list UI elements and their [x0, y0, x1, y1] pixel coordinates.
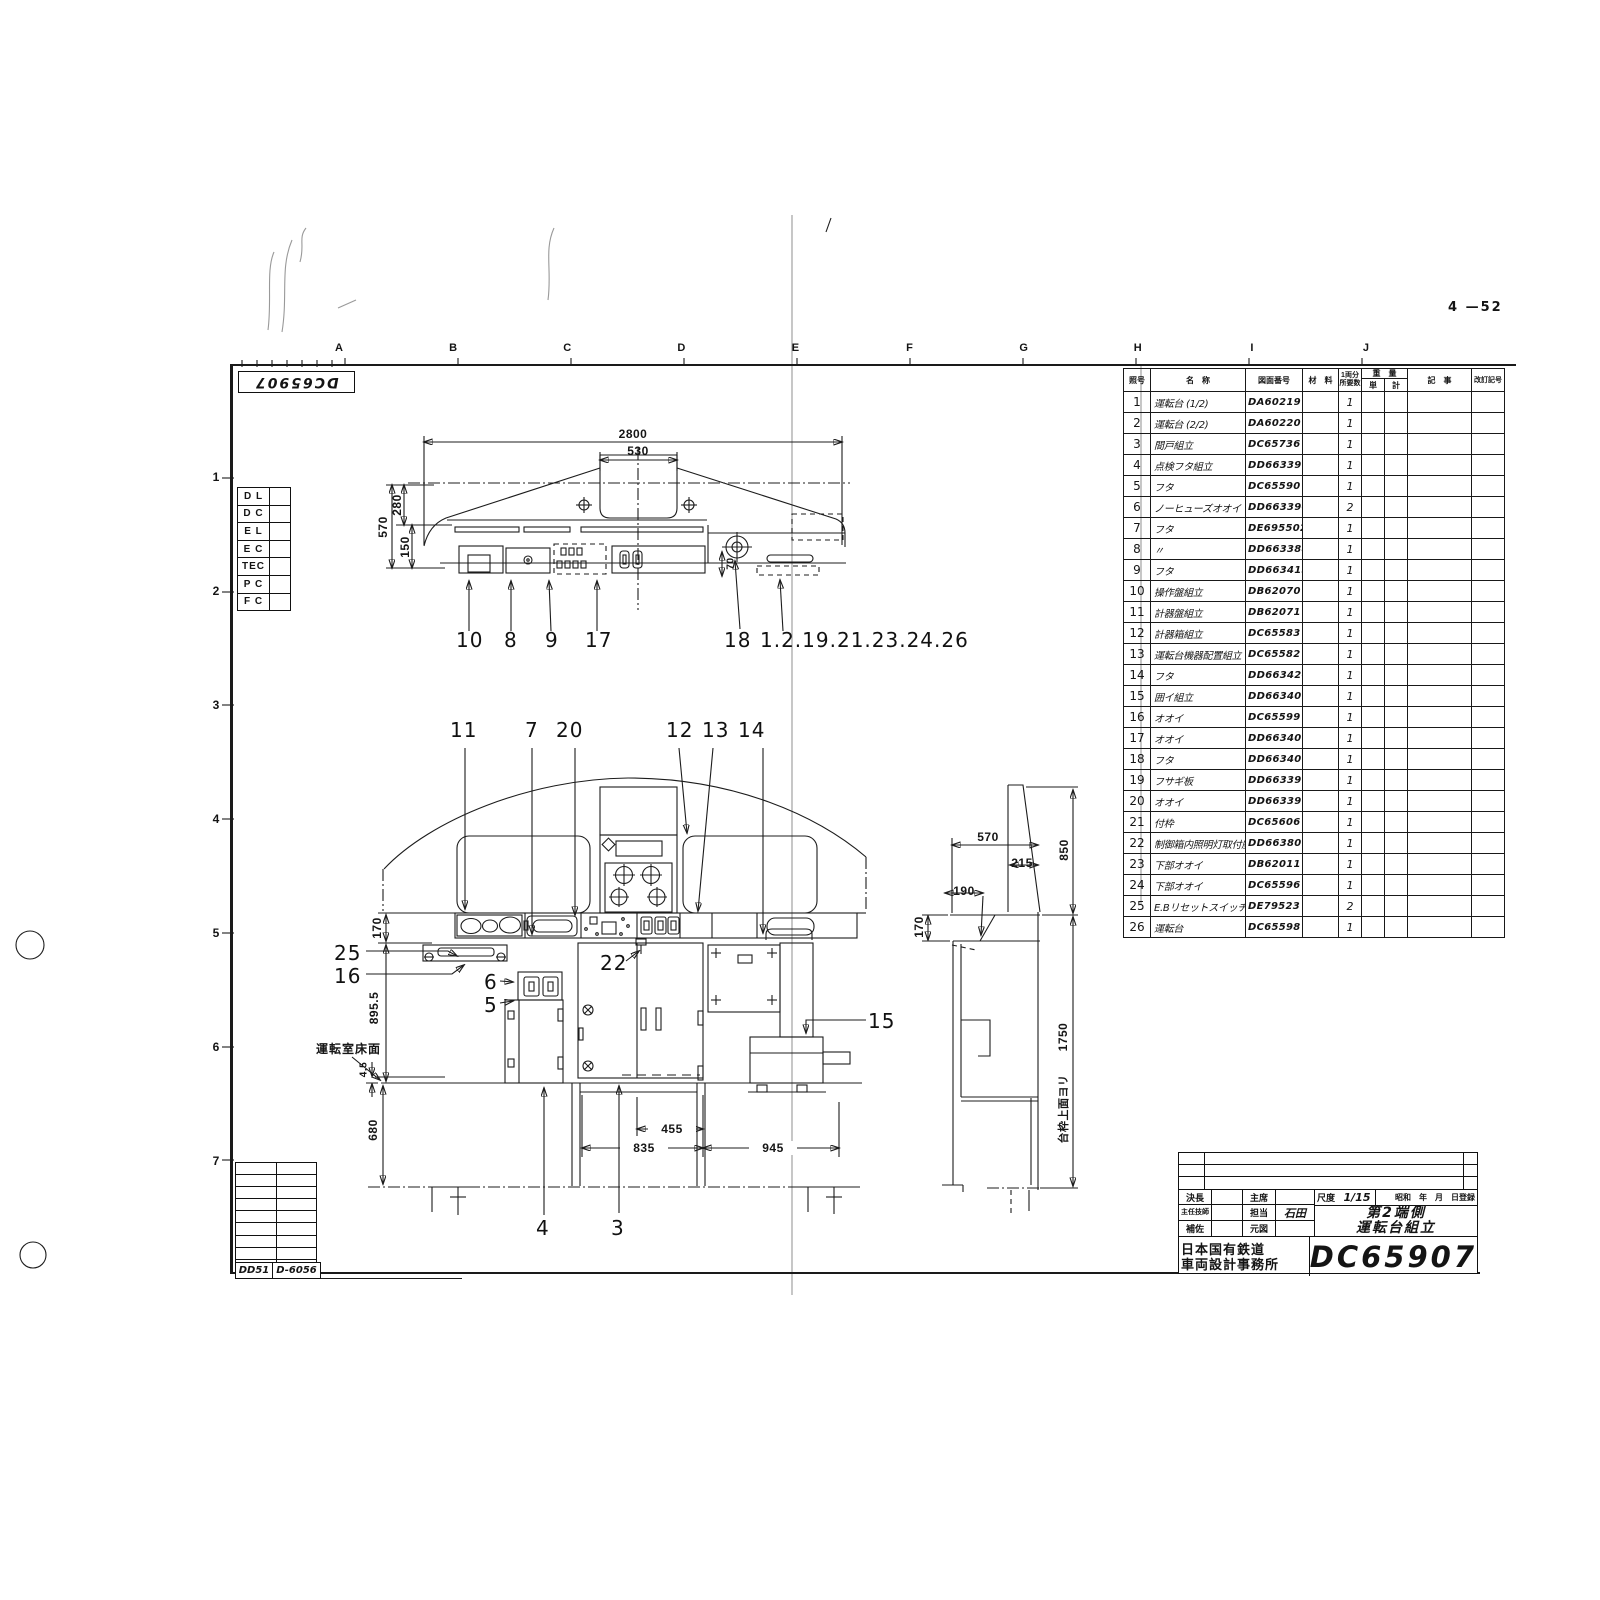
part-name: E.Bリセットスイッチ付板: [1151, 896, 1246, 916]
parts-table-header: 照号 名 称 図面番号 材 料 1両分 所要数 重 量 単 計 記 事 改訂記号: [1124, 369, 1504, 392]
part-revision: [1472, 623, 1504, 643]
callout-11: 11: [450, 718, 477, 742]
part-weight-unit: [1362, 518, 1385, 538]
part-remarks: [1408, 875, 1472, 895]
callout-6: 6: [484, 970, 498, 994]
drawing-title-line2: 運転台組立: [1356, 1221, 1436, 1236]
part-material: [1303, 581, 1339, 601]
part-weight-total: [1385, 665, 1408, 685]
part-row: 23 下部オオイ DB62011 1: [1124, 854, 1504, 875]
part-remarks: [1408, 686, 1472, 706]
part-remarks: [1408, 833, 1472, 853]
drawing-sheet: DC65907 4 —52 ABCDEFGHIJ 1234567 D L D C…: [0, 0, 1600, 1600]
part-row: 1 運転台 (1/2) DA60219 1: [1124, 392, 1504, 413]
grid-letter: I: [1246, 342, 1258, 354]
part-revision: [1472, 812, 1504, 832]
part-material: [1303, 707, 1339, 727]
approval-kecho-value: [1212, 1190, 1243, 1205]
part-row: 21 付枠 DC65606 1: [1124, 812, 1504, 833]
part-material: [1303, 476, 1339, 496]
grid-letter: H: [1132, 342, 1144, 354]
part-remarks: [1408, 812, 1472, 832]
part-dwg-no: DD663399: [1246, 770, 1303, 790]
part-material: [1303, 602, 1339, 622]
part-remarks: [1408, 455, 1472, 475]
part-material: [1303, 644, 1339, 664]
part-revision: [1472, 455, 1504, 475]
part-material: [1303, 728, 1339, 748]
scale-value: 1/15: [1339, 1191, 1375, 1204]
part-dwg-no: DC65606: [1246, 812, 1303, 832]
part-revision: [1472, 686, 1504, 706]
dim-945: 945: [749, 1141, 797, 1155]
header-name: 名 称: [1151, 369, 1246, 391]
approval-grid: 決長 主席 主任技師 担当 石田 補佐 元図: [1179, 1190, 1315, 1236]
part-dwg-no: DB62011: [1246, 854, 1303, 874]
part-no: 16: [1124, 707, 1151, 727]
part-weight-total: [1385, 413, 1408, 433]
part-remarks: [1408, 518, 1472, 538]
part-weight-unit: [1362, 665, 1385, 685]
part-name: フタ: [1151, 476, 1246, 496]
approval-hosa-label: 補佐: [1179, 1221, 1212, 1236]
part-material: [1303, 560, 1339, 580]
part-weight-unit: [1362, 602, 1385, 622]
approval-shunin-label: 主任技師: [1179, 1205, 1212, 1220]
part-qty: 2: [1339, 497, 1362, 517]
dim-150: 150: [398, 525, 412, 569]
part-weight-total: [1385, 791, 1408, 811]
part-material: [1303, 413, 1339, 433]
underframe-ref-label: 台枠上面ヨリ: [1055, 1069, 1071, 1149]
part-dwg-no: DB62071: [1246, 602, 1303, 622]
part-dwg-no: DC65590: [1246, 476, 1303, 496]
part-revision: [1472, 581, 1504, 601]
part-dwg-no: DD663407: [1246, 749, 1303, 769]
left-reference-table: D L D C E L E C TEC: [237, 487, 291, 611]
reference-blank-cell: [270, 488, 290, 505]
part-weight-total: [1385, 581, 1408, 601]
part-qty: 1: [1339, 476, 1362, 496]
part-dwg-no: DD663415: [1246, 560, 1303, 580]
part-name: フサギ板: [1151, 770, 1246, 790]
part-row: 19 フサギ板 DD663399 1: [1124, 770, 1504, 791]
part-qty: 1: [1339, 707, 1362, 727]
dim-170-front: 170: [370, 906, 384, 950]
callout-10: 10: [456, 628, 483, 652]
reference-blank-cell: [270, 541, 290, 558]
part-dwg-no: DE79523: [1246, 896, 1303, 916]
part-remarks: [1408, 854, 1472, 874]
part-qty: 1: [1339, 623, 1362, 643]
reference-label: P C: [238, 576, 270, 593]
part-row: 20 オオイ DD663391 1: [1124, 791, 1504, 812]
part-revision: [1472, 665, 1504, 685]
part-name: 運転台 (2/2): [1151, 413, 1246, 433]
part-revision: [1472, 560, 1504, 580]
part-weight-unit: [1362, 560, 1385, 580]
part-no: 7: [1124, 518, 1151, 538]
grid-letter: A: [333, 342, 345, 354]
reference-row: D C: [238, 506, 290, 524]
part-material: [1303, 455, 1339, 475]
part-no: 2: [1124, 413, 1151, 433]
dim-680: 680: [366, 1108, 380, 1152]
dim-2800: 2800: [603, 427, 663, 441]
part-weight-unit: [1362, 413, 1385, 433]
part-row: 26 運転台 DC65598 1: [1124, 917, 1504, 937]
part-revision: [1472, 791, 1504, 811]
part-name: 囲イ組立: [1151, 686, 1246, 706]
header-material: 材 料: [1303, 369, 1339, 391]
part-weight-total: [1385, 392, 1408, 412]
dim-215: 215: [1002, 856, 1042, 870]
part-no: 6: [1124, 497, 1151, 517]
part-revision: [1472, 917, 1504, 937]
revision-row: [1179, 1153, 1477, 1165]
part-dwg-no: DA60220: [1246, 413, 1303, 433]
part-row: 17 オオイ DD663406 1: [1124, 728, 1504, 749]
part-material: [1303, 392, 1339, 412]
part-name: フタ: [1151, 749, 1246, 769]
dim-280: 280: [390, 483, 404, 527]
part-weight-unit: [1362, 875, 1385, 895]
callout-14: 14: [738, 718, 765, 742]
grid-letter: G: [1018, 342, 1030, 354]
callout-18: 18: [724, 628, 751, 652]
part-row: 15 囲イ組立 DD663409 1: [1124, 686, 1504, 707]
grid-letter: B: [447, 342, 459, 354]
part-name: 下部オオイ: [1151, 854, 1246, 874]
part-weight-unit: [1362, 539, 1385, 559]
header-weight-unit: 単: [1362, 379, 1385, 391]
part-no: 12: [1124, 623, 1151, 643]
grid-number: 6: [208, 1040, 224, 1054]
grid-number: 2: [208, 584, 224, 598]
part-weight-total: [1385, 707, 1408, 727]
corner-stamp: DC65907: [238, 371, 355, 393]
part-dwg-no: DE695502: [1246, 518, 1303, 538]
part-name: 運転台 (1/2): [1151, 392, 1246, 412]
part-qty: 1: [1339, 791, 1362, 811]
part-dwg-no: DD663388: [1246, 539, 1303, 559]
dim-530: 530: [608, 444, 668, 458]
part-weight-total: [1385, 518, 1408, 538]
callout-12: 12: [666, 718, 693, 742]
dim-835: 835: [620, 1141, 668, 1155]
part-row: 8 〃 DD663388 1: [1124, 539, 1504, 560]
model-row: DD51 D-6056: [235, 1262, 321, 1279]
part-no: 21: [1124, 812, 1151, 832]
model-code: D-6056: [273, 1263, 320, 1278]
part-remarks: [1408, 896, 1472, 916]
grid-number: 1: [208, 470, 224, 484]
part-no: 17: [1124, 728, 1151, 748]
floor-surface-label: 運転室床面: [316, 1040, 400, 1057]
drawing-title: 第2端側 運転台組立: [1315, 1206, 1477, 1236]
part-revision: [1472, 707, 1504, 727]
reference-row: TEC: [238, 558, 290, 576]
part-revision: [1472, 497, 1504, 517]
part-weight-total: [1385, 539, 1408, 559]
part-material: [1303, 833, 1339, 853]
part-qty: 1: [1339, 602, 1362, 622]
dim-455: 455: [648, 1122, 696, 1136]
part-no: 19: [1124, 770, 1151, 790]
part-name: 制御箱内照明灯取付座: [1151, 833, 1246, 853]
part-remarks: [1408, 581, 1472, 601]
reference-label: E C: [238, 541, 270, 558]
dim-70: 70: [726, 542, 737, 586]
part-no: 14: [1124, 665, 1151, 685]
callout-16: 16: [334, 964, 361, 988]
top-view: [386, 436, 850, 631]
part-material: [1303, 770, 1339, 790]
part-row: 22 制御箱内照明灯取付座 DD663809 1: [1124, 833, 1504, 854]
part-no: 26: [1124, 917, 1151, 937]
part-qty: 1: [1339, 875, 1362, 895]
callout-3: 3: [611, 1216, 625, 1240]
part-no: 5: [1124, 476, 1151, 496]
grid-numbers: 1234567: [208, 470, 224, 1168]
revision-blank-table: [235, 1162, 317, 1272]
part-dwg-no: DD663409: [1246, 686, 1303, 706]
part-qty: 1: [1339, 833, 1362, 853]
callout-8: 8: [504, 628, 518, 652]
part-name: 下部オオイ: [1151, 875, 1246, 895]
dim-850: 850: [1057, 828, 1071, 872]
part-revision: [1472, 749, 1504, 769]
part-weight-total: [1385, 749, 1408, 769]
header-weight: 重 量 単 計: [1362, 369, 1408, 391]
part-remarks: [1408, 665, 1472, 685]
part-remarks: [1408, 476, 1472, 496]
approval-kecho-label: 決長: [1179, 1190, 1212, 1205]
reference-label: D L: [238, 488, 270, 505]
grid-letter: D: [675, 342, 687, 354]
part-remarks: [1408, 413, 1472, 433]
part-weight-unit: [1362, 434, 1385, 454]
organization: 日本国有鉄道 車両設計事務所: [1179, 1237, 1310, 1276]
part-material: [1303, 623, 1339, 643]
part-weight-total: [1385, 854, 1408, 874]
part-revision: [1472, 854, 1504, 874]
part-remarks: [1408, 434, 1472, 454]
part-qty: 1: [1339, 644, 1362, 664]
sheet-number: 4 —52: [1448, 300, 1503, 315]
frame-top: [230, 364, 1516, 366]
part-row: 12 計器箱組立 DC65583 1: [1124, 623, 1504, 644]
corner-stamp-number: DC65907: [254, 374, 339, 390]
grid-letter: J: [1360, 342, 1372, 354]
part-name: 間戸組立: [1151, 434, 1246, 454]
scale-label: 尺度: [1315, 1191, 1339, 1204]
part-no: 18: [1124, 749, 1151, 769]
part-row: 25 E.Bリセットスイッチ付板 DE79523 2: [1124, 896, 1504, 917]
part-revision: [1472, 602, 1504, 622]
header-no: 照号: [1124, 369, 1151, 391]
part-weight-unit: [1362, 791, 1385, 811]
part-revision: [1472, 770, 1504, 790]
part-row: 3 間戸組立 DC65736 1: [1124, 434, 1504, 455]
part-weight-total: [1385, 476, 1408, 496]
part-weight-unit: [1362, 644, 1385, 664]
part-remarks: [1408, 539, 1472, 559]
part-qty: 1: [1339, 728, 1362, 748]
model-series: DD51: [236, 1263, 273, 1278]
part-dwg-no: DC65583: [1246, 623, 1303, 643]
part-revision: [1472, 833, 1504, 853]
part-row: 13 運転台機器配置組立 DC65582 1: [1124, 644, 1504, 665]
part-name: オオイ: [1151, 707, 1246, 727]
part-qty: 1: [1339, 665, 1362, 685]
part-revision: [1472, 392, 1504, 412]
part-weight-total: [1385, 560, 1408, 580]
callout-15: 15: [868, 1009, 895, 1033]
approval-genzu-value: [1276, 1221, 1314, 1236]
part-weight-unit: [1362, 749, 1385, 769]
part-dwg-no: DC65598: [1246, 917, 1303, 937]
reference-label: TEC: [238, 558, 270, 575]
part-material: [1303, 686, 1339, 706]
part-remarks: [1408, 749, 1472, 769]
part-no: 4: [1124, 455, 1151, 475]
part-remarks: [1408, 644, 1472, 664]
parts-table: 照号 名 称 図面番号 材 料 1両分 所要数 重 量 単 計 記 事 改訂記号: [1123, 368, 1505, 938]
part-weight-unit: [1362, 728, 1385, 748]
grid-number: 4: [208, 812, 224, 826]
approval-genzu-label: 元図: [1243, 1221, 1276, 1236]
part-no: 23: [1124, 854, 1151, 874]
frame-left: [230, 364, 233, 1274]
grid-letters: ABCDEFGHIJ: [333, 342, 1372, 354]
part-material: [1303, 434, 1339, 454]
callout-13: 13: [702, 718, 729, 742]
part-revision: [1472, 539, 1504, 559]
part-remarks: [1408, 560, 1472, 580]
revision-row: [1179, 1177, 1477, 1190]
part-material: [1303, 791, 1339, 811]
part-name: 計器盤組立: [1151, 602, 1246, 622]
organization-line2: 車両設計事務所: [1181, 1257, 1309, 1272]
part-revision: [1472, 875, 1504, 895]
part-row: 24 下部オオイ DC65596 1: [1124, 875, 1504, 896]
part-revision: [1472, 728, 1504, 748]
side-view: [922, 785, 1078, 1214]
grid-letter: F: [904, 342, 916, 354]
part-weight-total: [1385, 686, 1408, 706]
header-remarks: 記 事: [1408, 369, 1472, 391]
part-dwg-no: DA60219: [1246, 392, 1303, 412]
part-weight-total: [1385, 434, 1408, 454]
callout-group: 1.2.19.21.23.24.26: [760, 628, 969, 652]
part-dwg-no: DD663390: [1246, 497, 1303, 517]
part-weight-total: [1385, 623, 1408, 643]
part-qty: 1: [1339, 518, 1362, 538]
part-no: 10: [1124, 581, 1151, 601]
header-qty: 1両分 所要数: [1339, 369, 1362, 391]
part-name: 計器箱組立: [1151, 623, 1246, 643]
part-no: 24: [1124, 875, 1151, 895]
part-material: [1303, 539, 1339, 559]
part-material: [1303, 812, 1339, 832]
part-row: 2 運転台 (2/2) DA60220 1: [1124, 413, 1504, 434]
title-block: 決長 主席 主任技師 担当 石田 補佐 元図 尺度 1/15 昭和 年 月 日登…: [1178, 1152, 1478, 1274]
part-qty: 1: [1339, 413, 1362, 433]
part-weight-total: [1385, 833, 1408, 853]
part-weight-unit: [1362, 455, 1385, 475]
part-no: 8: [1124, 539, 1151, 559]
part-material: [1303, 749, 1339, 769]
dim-895-5: 895.5: [367, 982, 381, 1034]
part-no: 3: [1124, 434, 1151, 454]
part-dwg-no: DB62070: [1246, 581, 1303, 601]
part-remarks: [1408, 497, 1472, 517]
part-weight-total: [1385, 644, 1408, 664]
grid-letter: E: [789, 342, 801, 354]
part-row: 7 フタ DE695502 1: [1124, 518, 1504, 539]
part-weight-unit: [1362, 392, 1385, 412]
reference-label: F C: [238, 594, 270, 611]
reference-row: P C: [238, 576, 290, 594]
reference-label: E L: [238, 523, 270, 540]
part-row: 6 ノーヒューズオオイ DD663390 2: [1124, 497, 1504, 518]
reference-row: E C: [238, 541, 290, 559]
part-material: [1303, 497, 1339, 517]
part-no: 13: [1124, 644, 1151, 664]
part-revision: [1472, 896, 1504, 916]
part-weight-unit: [1362, 581, 1385, 601]
part-name: オオイ: [1151, 728, 1246, 748]
approval-tanto-name: 石田: [1276, 1205, 1314, 1220]
part-remarks: [1408, 623, 1472, 643]
part-material: [1303, 518, 1339, 538]
header-weight-total: 計: [1385, 379, 1407, 391]
part-weight-unit: [1362, 686, 1385, 706]
part-no: 15: [1124, 686, 1151, 706]
header-dwg: 図面番号: [1246, 369, 1303, 391]
parts-table-rows: 1 運転台 (1/2) DA60219 1 2 運転台 (2/2) DA6022…: [1124, 392, 1504, 937]
part-qty: 1: [1339, 392, 1362, 412]
drawing-number: DC65907: [1310, 1237, 1477, 1276]
callout-20: 20: [556, 718, 583, 742]
dim-570-side: 570: [966, 830, 1010, 844]
part-remarks: [1408, 728, 1472, 748]
part-qty: 2: [1339, 896, 1362, 916]
part-dwg-no: DC65596: [1246, 875, 1303, 895]
reference-row: E L: [238, 523, 290, 541]
part-qty: 1: [1339, 581, 1362, 601]
part-name: ノーヒューズオオイ: [1151, 497, 1246, 517]
scan-artifacts: [16, 215, 1141, 1295]
part-dwg-no: DD663809: [1246, 833, 1303, 853]
part-row: 14 フタ DD663420 1: [1124, 665, 1504, 686]
part-material: [1303, 917, 1339, 937]
part-revision: [1472, 476, 1504, 496]
callout-22: 22: [600, 951, 627, 975]
reference-row: D L: [238, 488, 290, 506]
part-weight-total: [1385, 728, 1408, 748]
header-revision: 改訂記号: [1472, 369, 1504, 391]
callout-5: 5: [484, 993, 498, 1017]
part-dwg-no: DD663406: [1246, 728, 1303, 748]
part-dwg-no: DC65736: [1246, 434, 1303, 454]
part-name: オオイ: [1151, 791, 1246, 811]
reference-blank-cell: [270, 506, 290, 523]
part-weight-unit: [1362, 833, 1385, 853]
part-name: 付枠: [1151, 812, 1246, 832]
dim-1750: 1750: [1056, 1011, 1070, 1063]
